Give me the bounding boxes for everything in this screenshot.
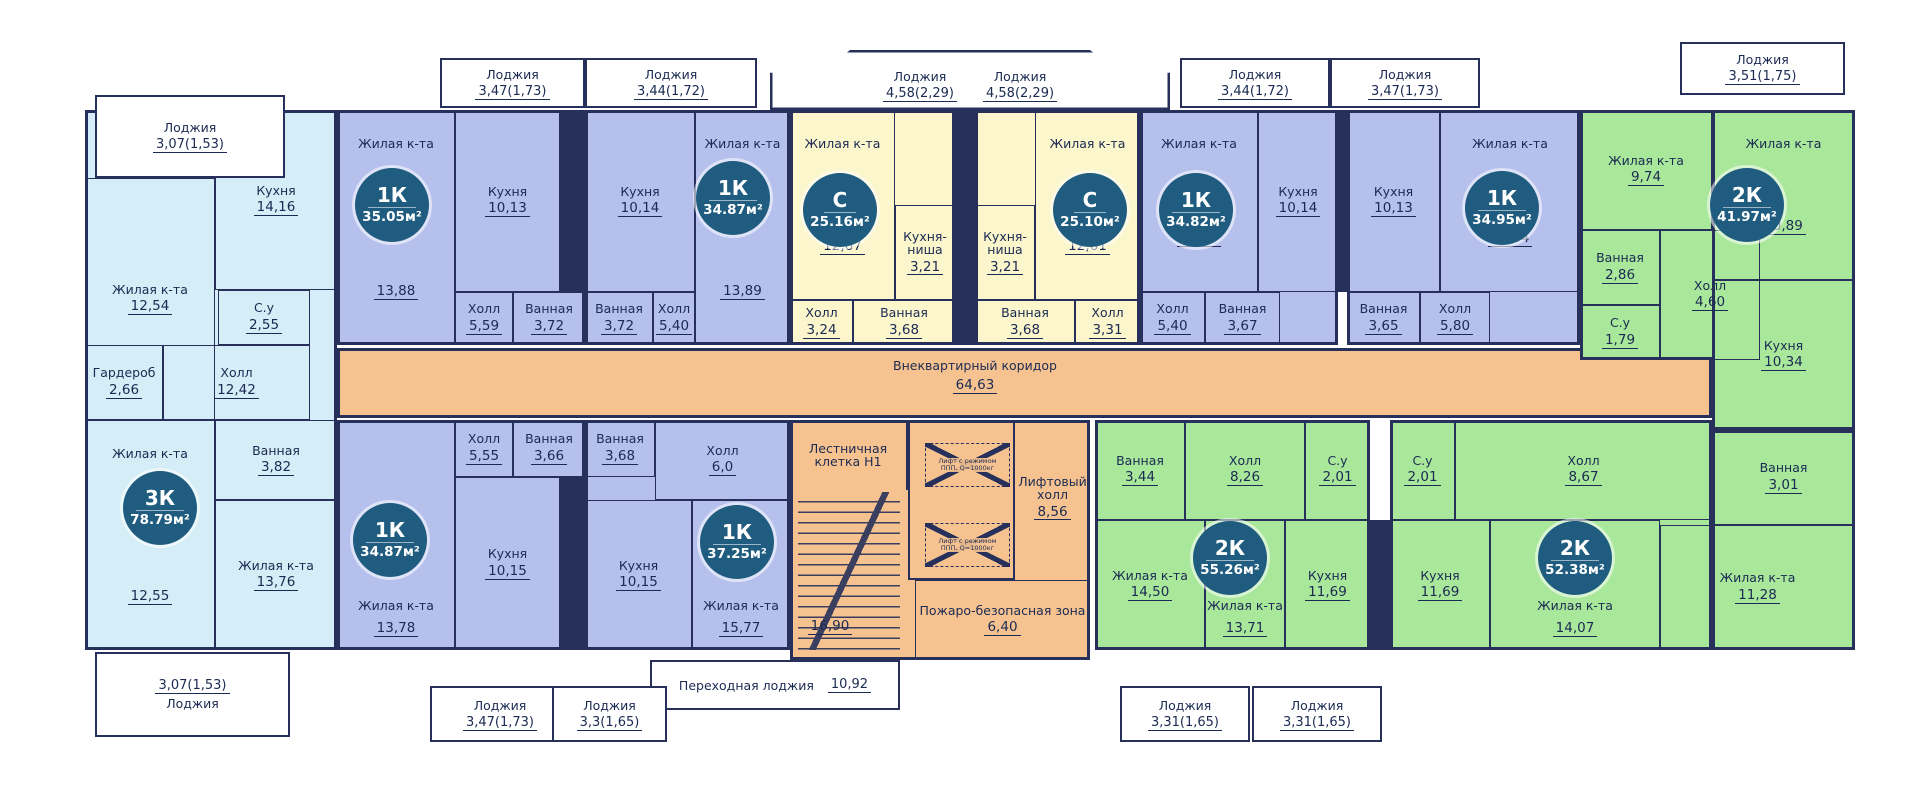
apt6-room-bath: Ванная 3,65 xyxy=(1347,292,1420,345)
apt7-room-kitchen: Кухня 10,34 xyxy=(1712,280,1855,430)
badge-apt10-2k[interactable]: 2К 55.26м² xyxy=(1193,521,1267,595)
badge-apt9-1k[interactable]: 1К 37.25м² xyxy=(700,505,774,579)
riser-shaft-1 xyxy=(560,110,585,292)
lift-cabin-2: Лифт с режимом ППП, Q=1000кг xyxy=(925,523,1010,567)
apt11-room-kitchen: Кухня 11,69 xyxy=(1390,520,1490,650)
floor-plan: Жилая к-та 12,54 Кухня 14,16 С.у 2,55 Га… xyxy=(0,0,1920,809)
loggia-apt5: Лоджия 3,44(1,72) xyxy=(1180,58,1330,108)
loggia-apt9: Лоджия 3,3(1,65) xyxy=(552,686,667,742)
apt1-room-bath: Ванная 3,72 xyxy=(513,292,585,345)
loggia-apt10: Лоджия 3,31(1,65) xyxy=(1120,686,1250,742)
apt9-room-hall: Холл 6,0 xyxy=(655,420,790,500)
apt10-room-hall: Холл 8,26 xyxy=(1185,420,1305,520)
riser-shaft-4 xyxy=(560,477,585,650)
apt1-room-kitchen: Кухня 10,13 xyxy=(455,110,560,292)
apt4-room-hall: Холл 3,31 xyxy=(1075,300,1140,345)
apt3-room-hall: Холл 3,24 xyxy=(790,300,853,345)
badge-apt6-1k[interactable]: 1К 34.95м² xyxy=(1465,171,1539,245)
loggia-apt0-top: Лоджия 3,07(1,53) xyxy=(95,95,285,178)
apt9-room-kitchen: Кухня 10,15 xyxy=(585,500,692,650)
badge-apt3-studio[interactable]: С 25.16м² xyxy=(803,173,877,247)
apt8-room-kitchen: Кухня 10,15 xyxy=(455,477,560,650)
apt11-room-wc: С.у 2,01 xyxy=(1390,420,1455,520)
apt0-room-wardrobe: Гардероб 2,66 xyxy=(85,345,163,420)
apt5-room-kitchen: Кухня 10,14 xyxy=(1258,110,1338,292)
badge-apt7-2k[interactable]: 2К 41.97м² xyxy=(1710,168,1784,242)
apt11-room-living-2: Жилая к-та 11,28 xyxy=(1660,525,1855,650)
loggia-studios-shared: Лоджия 4,58(2,29) Лоджия 4,58(2,29) xyxy=(770,50,1170,110)
apt0-room-bath: Ванная 3,82 xyxy=(215,420,337,500)
apt6-room-kitchen: Кухня 10,13 xyxy=(1347,110,1440,292)
loggia-apt1: Лоджия 3,47(1,73) xyxy=(440,58,585,108)
apt7-room-bath: Ванная 2,86 xyxy=(1580,230,1660,305)
apt3-room-kitchen-niche: Кухня-ниша 3,21 xyxy=(895,205,955,300)
loggia-apt7: Лоджия 3,51(1,75) xyxy=(1680,42,1845,95)
apt6-room-hall: Холл 5,80 xyxy=(1420,292,1490,345)
lift-cabin-1: Лифт с режимом ППП, Q=1000кг xyxy=(925,443,1010,487)
badge-apt0-3k[interactable]: 3К 78.79м² xyxy=(123,471,197,545)
loggia-apt0-bottom: Лоджия 3,07(1,53) xyxy=(95,652,290,737)
apt5-room-hall: Холл 5,40 xyxy=(1140,292,1205,345)
apt11-room-bath: Ванная 3,01 xyxy=(1712,430,1855,525)
apt2-room-bath: Ванная 3,72 xyxy=(585,292,653,345)
badge-apt8-1k[interactable]: 1К 34.87м² xyxy=(353,503,427,577)
apt10-room-living-1: Жилая к-та 14,50 xyxy=(1095,520,1205,650)
badge-apt2-1k[interactable]: 1К 34.87м² xyxy=(696,161,770,235)
apt4-room-kitchen-niche: Кухня-ниша 3,21 xyxy=(975,205,1035,300)
badge-apt11-2k[interactable]: 2К 52.38м² xyxy=(1538,521,1612,595)
apt0-room-hall: Холл 12,42 xyxy=(163,345,310,420)
apt0-room-living-3: Жилая к-та 13,76 xyxy=(215,500,337,650)
apt7-room-wc: С.у 1,79 xyxy=(1580,305,1660,360)
fire-safe-zone: Пожаро-безопасная зона 6,40 xyxy=(915,580,1090,660)
apt8-room-hall: Холл 5,55 xyxy=(455,420,513,477)
riser-shaft-3 xyxy=(1338,110,1347,292)
riser-shaft-2 xyxy=(955,110,975,345)
stairwell-area: 16,90 xyxy=(795,618,865,635)
apt3-room-bath: Ванная 3,68 xyxy=(853,300,955,345)
badge-apt4-studio[interactable]: С 25.10м² xyxy=(1053,173,1127,247)
apt0-room-wc: С.у 2,55 xyxy=(218,290,310,345)
lift-hall: Лифтовый холл 8,56 xyxy=(1015,420,1090,575)
apt11-room-hall: Холл 8,67 xyxy=(1455,420,1712,520)
loggia-apt6: Лоджия 3,47(1,73) xyxy=(1330,58,1480,108)
badge-apt1-1k[interactable]: 1К 35.05м² xyxy=(355,168,429,242)
loggia-apt8: Лоджия 3,47(1,73) xyxy=(430,686,570,742)
corridor-label: Внеквартирный коридор 64,63 xyxy=(870,358,1080,394)
apt2-room-hall: Холл 5,40 xyxy=(653,292,695,345)
apt10-room-kitchen: Кухня 11,69 xyxy=(1285,520,1370,650)
apt2-room-kitchen: Кухня 10,14 xyxy=(585,110,695,292)
apt8-room-bath: Ванная 3,66 xyxy=(513,420,585,477)
apt4-room-bath: Ванная 3,68 xyxy=(975,300,1075,345)
apt1-room-hall: Холл 5,59 xyxy=(455,292,513,345)
apt5-room-bath: Ванная 3,67 xyxy=(1205,292,1280,345)
riser-shaft-5 xyxy=(1370,520,1390,650)
badge-apt5-1k[interactable]: 1К 34.82м² xyxy=(1159,173,1233,247)
apt10-room-bath: Ванная 3,44 xyxy=(1095,420,1185,520)
loggia-apt2: Лоджия 3,44(1,72) xyxy=(585,58,757,108)
stairwell-label: Лестничная клетка Н1 xyxy=(790,420,908,490)
loggia-apt11: Лоджия 3,31(1,65) xyxy=(1252,686,1382,742)
transfer-loggia: Переходная лоджия 10,92 xyxy=(650,660,900,710)
apt10-room-wc: С.у 2,01 xyxy=(1305,420,1370,520)
apt7-room-living-1: Жилая к-та 9,74 xyxy=(1580,110,1712,230)
apt9-room-bath: Ванная 3,68 xyxy=(585,420,655,477)
